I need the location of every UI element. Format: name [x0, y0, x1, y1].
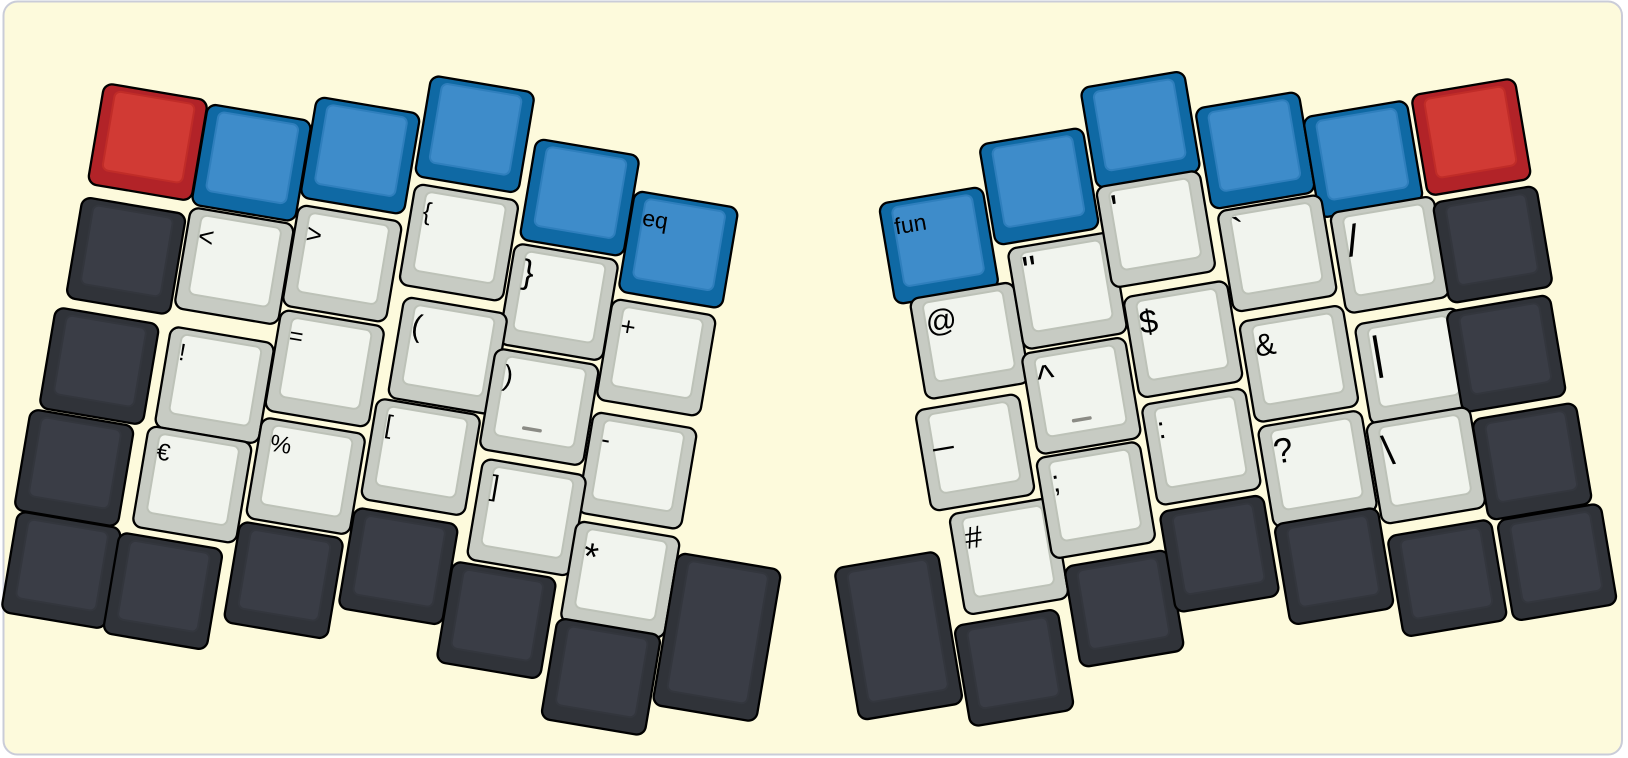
svg-text:%: %: [268, 430, 294, 460]
svg-text:fun: fun: [892, 208, 928, 239]
svg-text:eq: eq: [641, 204, 671, 234]
svg-text:@: @: [923, 301, 960, 341]
